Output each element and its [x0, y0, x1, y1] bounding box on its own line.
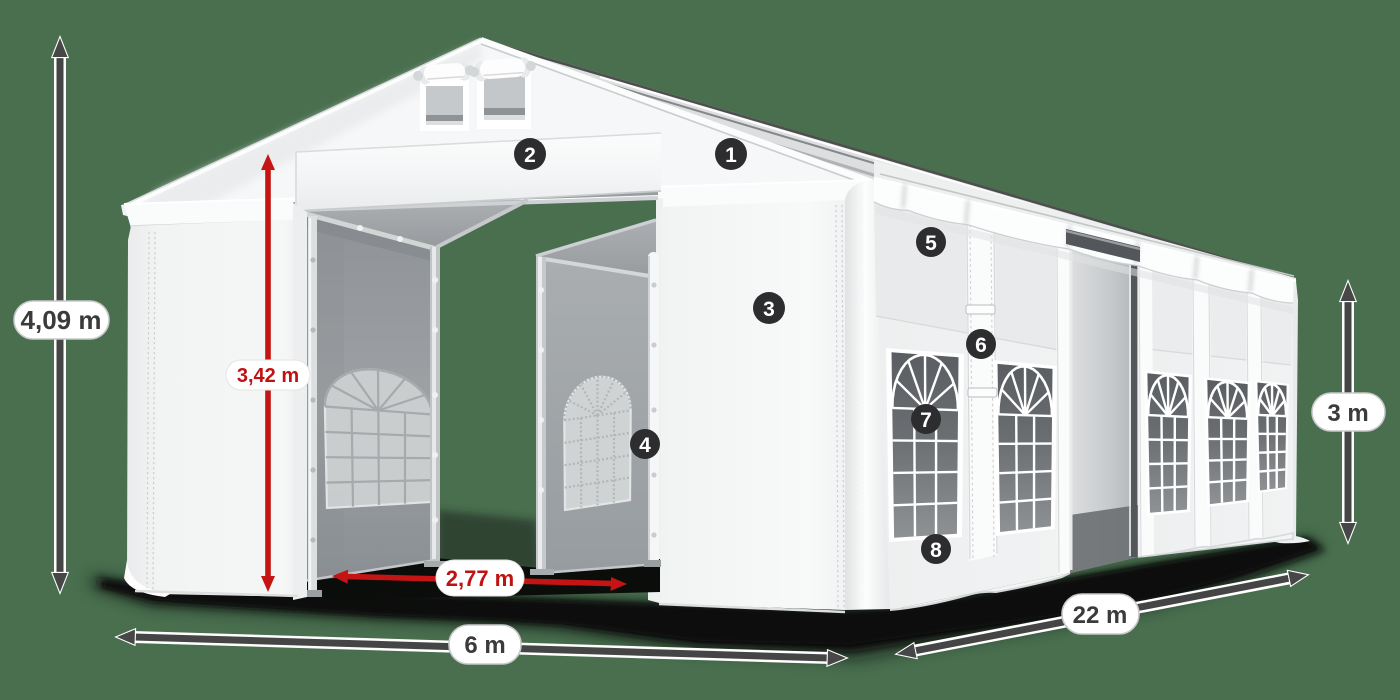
svg-text:2: 2: [524, 144, 536, 167]
svg-text:2,77 m: 2,77 m: [446, 566, 515, 591]
svg-text:3 m: 3 m: [1327, 400, 1368, 427]
svg-text:6 m: 6 m: [464, 632, 505, 659]
svg-text:1: 1: [725, 144, 737, 167]
svg-text:7: 7: [920, 409, 932, 432]
svg-text:4,09 m: 4,09 m: [21, 305, 102, 335]
svg-text:22 m: 22 m: [1073, 602, 1128, 629]
svg-text:8: 8: [930, 539, 942, 562]
svg-text:6: 6: [975, 334, 987, 357]
svg-text:5: 5: [925, 232, 937, 255]
svg-text:4: 4: [639, 434, 651, 457]
svg-text:3,42 m: 3,42 m: [237, 365, 299, 387]
svg-text:3: 3: [763, 298, 775, 321]
